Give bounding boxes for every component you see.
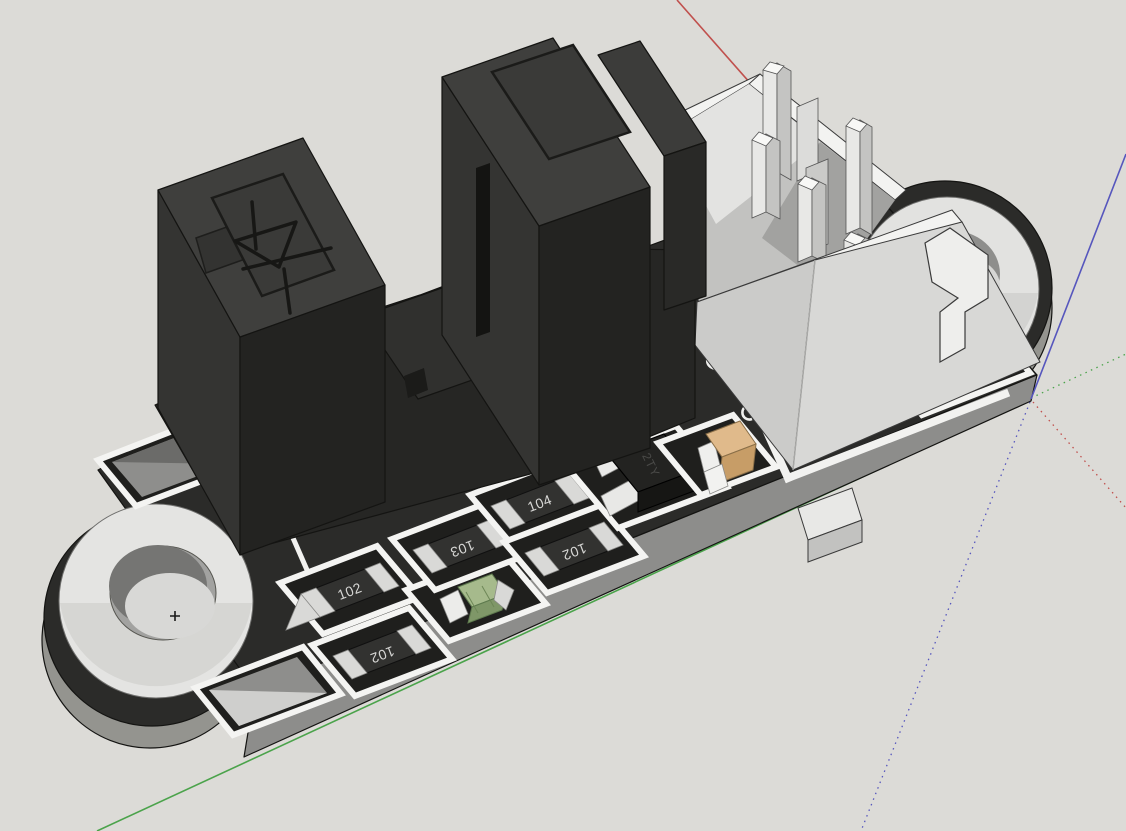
receiver-slit: [476, 163, 490, 337]
sensor-step-front: [664, 142, 706, 310]
left-hole-floor: [125, 573, 215, 639]
viewport-3d[interactable]: 102 102 103 104 102: [0, 0, 1126, 831]
mounting-hole-left[interactable]: [59, 504, 253, 698]
